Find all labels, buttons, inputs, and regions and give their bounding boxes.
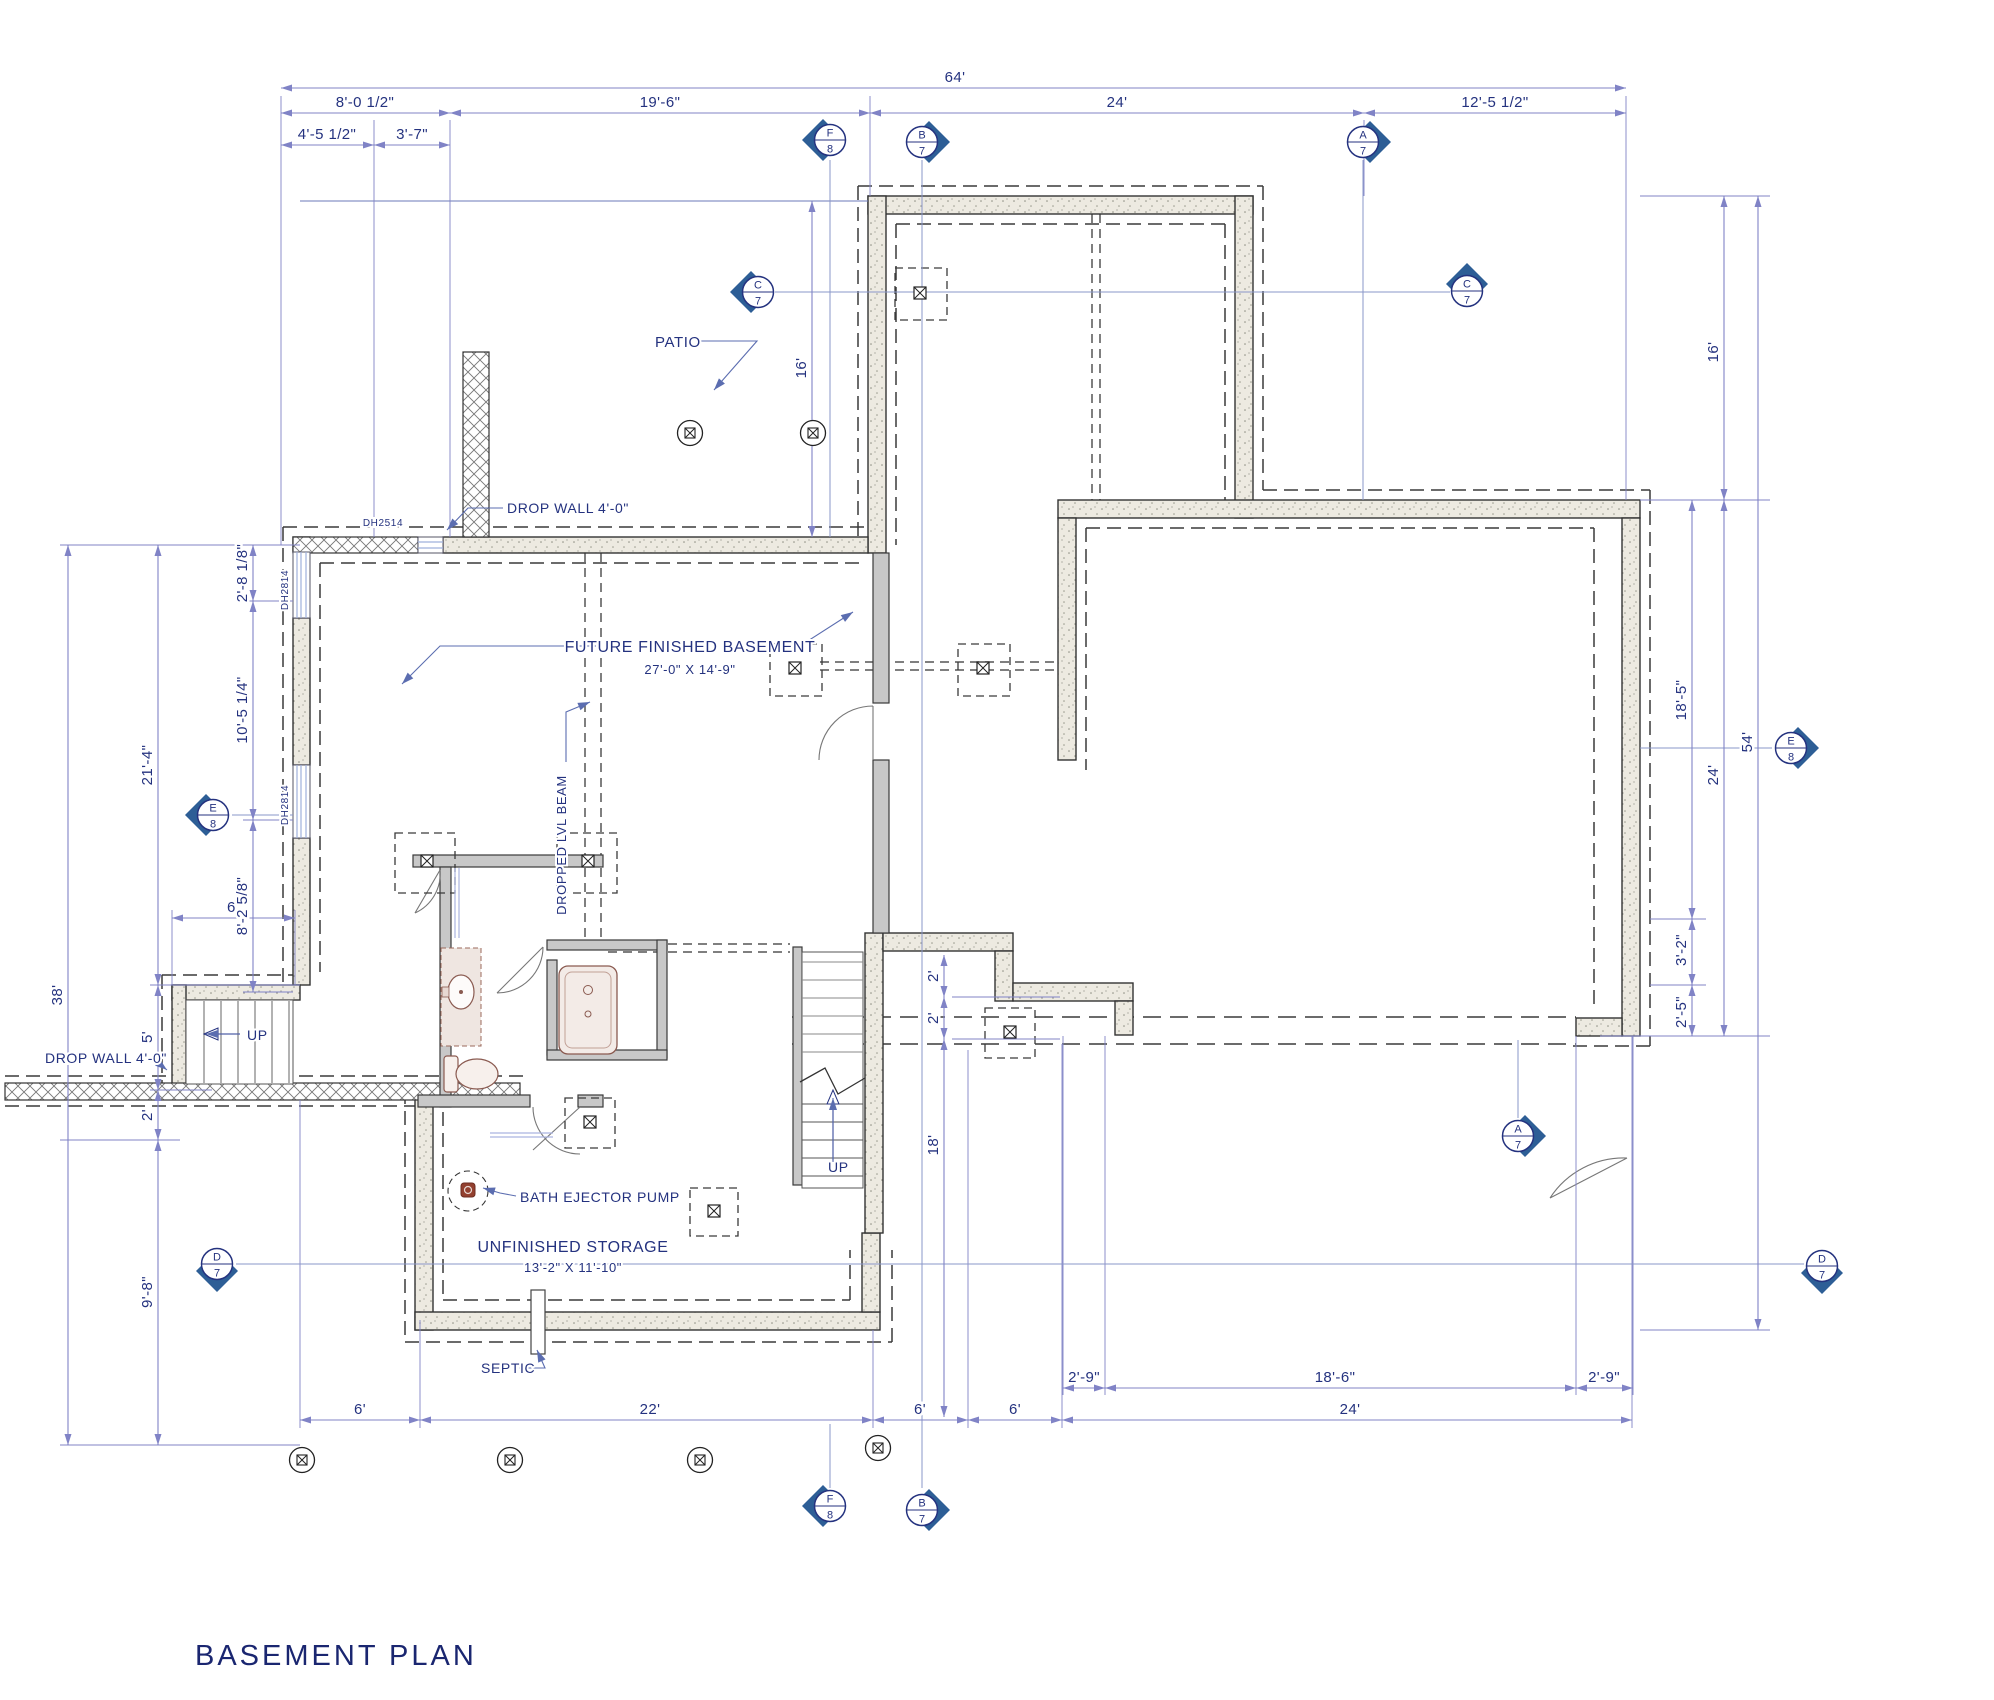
windows [293,537,443,838]
post-icon [977,662,989,674]
toilet-bowl [456,1059,498,1089]
page-title: BASEMENT PLAN [195,1640,477,1673]
dimension: 54' [1739,196,1762,1330]
basement-plan-sheet: 64'8'-0 1/2"19'-6"24'12'-5 1/2"4'-5 1/2"… [0,0,1994,1700]
dimension: 4'-5 1/2" [281,126,374,149]
label-unfinished-storage-size: 13'-2" X 11'-10" [524,1260,622,1275]
bath-ejector-pump-symbol [448,1171,488,1211]
garage-footing-double-dash [792,1017,1576,1044]
dimension-label: 16' [1705,342,1722,363]
dimension-label: 10'-5 1/4" [234,676,251,743]
dimension: 16' [1705,196,1728,500]
label-septic: SEPTIC [481,1360,535,1376]
exterior-concrete-walls [172,196,1640,1330]
dimension: 2' [925,997,948,1039]
dimension-label: 24' [1340,1401,1361,1418]
marker-letter: A [1514,1124,1522,1136]
section-marker-C7: C7 [1446,263,1488,307]
post-icon [914,287,926,299]
dimension-label: 18'-6" [1315,1369,1356,1386]
label-dropped-lvl-beam: DROPPED LVL BEAM [554,775,569,915]
dimension: 2'-9" [1576,1369,1633,1392]
door-hall-small [415,870,440,913]
section-marker-E8: E8 [185,794,229,836]
dimension: 6' [968,1401,1062,1424]
left-exterior-stairs [186,1000,293,1084]
dimension-label: 2'-5" [1673,996,1690,1028]
dimension: 2' [925,955,948,997]
dimension-label: 24' [1107,94,1128,111]
dimension-label: 64' [945,69,966,86]
marker-letter: C [754,280,762,292]
section-marker-C7: C7 [730,271,774,313]
marker-letter: F [827,1494,834,1506]
marker-number: 8 [1788,752,1794,764]
dimension: 18'-6" [1105,1369,1576,1392]
window-left-lower-glyph [293,765,310,838]
dimension-label: 8'-2 5/8" [234,877,251,936]
sink-faucet [442,987,449,997]
section-marker-D7: D7 [196,1249,238,1293]
post-icon [708,1205,720,1217]
marker-letter: B [918,1498,925,1510]
label-future-basement: FUTURE FINISHED BASEMENT [565,639,816,656]
dimension: 3'-2" [1673,919,1696,985]
marker-number: 7 [1464,295,1470,307]
dimension: 9'-8" [139,1140,162,1445]
dimension: 38' [49,545,72,1445]
label-bath-ejector-pump: BATH EJECTOR PUMP [520,1189,680,1205]
dimension: 24' [1062,1401,1632,1424]
dimension-label: 2' [925,970,942,982]
pier-footing-icon [866,1436,891,1461]
section-marker-E8: E8 [1776,727,1820,769]
section-marker-A7: A7 [1503,1115,1547,1157]
dimension-label: 54' [1739,732,1756,753]
section-marker-F8: F8 [802,119,846,161]
label-drop-wall-left: DROP WALL 4'-0" [45,1050,167,1066]
marker-letter: D [1818,1254,1826,1266]
pier-footing-icon [678,421,703,446]
marker-number: 7 [919,146,925,158]
marker-number: 7 [1819,1270,1825,1282]
bathtub [559,966,617,1054]
label-window-top: DH2514 [363,518,403,529]
label-drop-wall-top: DROP WALL 4'-0" [507,500,629,516]
dimension: 18'-5" [1673,500,1696,919]
pier-symbols [290,287,1017,1473]
dimension-label: 6' [354,1401,366,1418]
dimension: 5' [139,985,162,1090]
floor-plan-drawing: 64'8'-0 1/2"19'-6"24'12'-5 1/2"4'-5 1/2"… [0,0,1994,1700]
marker-number: 7 [1515,1140,1521,1152]
marker-letter: D [213,1252,221,1264]
dimension-label: 2' [139,1109,156,1121]
marker-letter: B [918,130,925,142]
dimension: 8'-2 5/8" [234,820,257,992]
marker-letter: E [209,803,216,815]
marker-number: 8 [827,1510,833,1522]
dimension-label: 2'-9" [1068,1369,1100,1386]
dimension: 18' [925,1039,948,1417]
septic-stub [531,1290,545,1354]
dimension: 64' [281,69,1626,92]
dimension-label: 16' [793,358,810,379]
dimension: 10'-5 1/4" [234,601,257,820]
door-bath-upper [497,947,543,993]
post-icon [789,662,801,674]
dimension-label: 6' [914,1401,926,1418]
pier-footing-icon [498,1448,523,1473]
pier-footing-icon [801,421,826,446]
pier-footing-icon [290,1448,315,1473]
dimension: 8'-0 1/2" [281,94,450,117]
dimension: 6' [300,1401,420,1424]
post-icon [1004,1026,1016,1038]
beam-dashed-lines [585,214,1100,952]
dimension: 2'-9" [1063,1369,1105,1392]
dimension-label: 8'-0 1/2" [336,94,395,111]
post-icon [421,855,433,867]
door-hall [819,706,873,760]
section-marker-B7: B7 [907,121,951,163]
leader-dropped-lvl-beam [566,702,590,762]
marker-number: 7 [919,1514,925,1526]
marker-letter: E [1787,736,1794,748]
section-marker-A7: A7 [1348,121,1392,163]
door-garage-corner [1550,1158,1627,1198]
dimension-label: 18' [925,1135,942,1156]
marker-number: 8 [827,144,833,156]
dimension-label: 22' [640,1401,661,1418]
dimension-label: 2'-8 1/8" [234,544,251,603]
label-window-left-upper: DH2814 [280,570,291,610]
doors [415,706,1627,1198]
dimension: 2'-5" [1673,985,1696,1036]
dimension: 24' [870,94,1364,117]
post-icon [582,855,594,867]
dimension: 22' [420,1401,873,1424]
dimension-label: 19'-6" [640,94,681,111]
window-left-upper-glyph [293,552,310,618]
dimension: 6' [873,1401,968,1424]
dimension: 2'-8 1/8" [234,544,257,603]
dimension-label: 4'-5 1/2" [298,126,357,143]
label-unfinished-storage: UNFINISHED STORAGE [478,1239,669,1256]
dimension-label: 18'-5" [1673,680,1690,721]
section-marker-B7: B7 [907,1489,951,1531]
pier-footing-icon [688,1448,713,1473]
dimension-label: 5' [139,1031,156,1043]
dimension: 16' [793,201,816,537]
marker-letter: F [827,128,834,140]
section-marker-F8: F8 [802,1485,846,1527]
label-up-left-stair: UP [247,1027,268,1043]
marker-letter: C [1463,279,1471,291]
dimension: 24' [1705,500,1728,1036]
dimension: 3'-7" [374,126,450,149]
marker-letter: A [1359,130,1367,142]
label-future-basement-size: 27'-0" X 14'-9" [644,662,735,677]
window-top-glyph [418,537,443,553]
dimension: 19'-6" [450,94,870,117]
dimension-label: 3'-7" [396,126,428,143]
dimension-label: 2' [925,1012,942,1024]
door-bath-lower [533,1107,580,1154]
dimension: 21'-4" [139,545,162,985]
dimension-label: 3'-2" [1673,934,1690,966]
label-patio: PATIO [655,334,701,351]
dimension-label: 9'-8" [139,1276,156,1308]
dimension-label: 2'-9" [1588,1369,1620,1386]
marker-number: 7 [755,296,761,308]
dimension-label: 21'-4" [139,745,156,786]
label-window-left-lower: DH2814 [280,785,291,825]
dimension-label: 38' [49,985,66,1006]
label-up-main-stair: UP [828,1159,849,1175]
dimension-label: 6' [1009,1401,1021,1418]
dimension: 12'-5 1/2" [1364,94,1626,117]
dimension-label: 24' [1705,765,1722,786]
leader-patio [700,341,757,390]
marker-number: 7 [214,1268,220,1280]
marker-number: 7 [1360,146,1366,158]
section-marker-D7: D7 [1801,1251,1843,1295]
marker-number: 8 [210,819,216,831]
dimension-label: 12'-5 1/2" [1461,94,1528,111]
post-icon [584,1116,596,1128]
